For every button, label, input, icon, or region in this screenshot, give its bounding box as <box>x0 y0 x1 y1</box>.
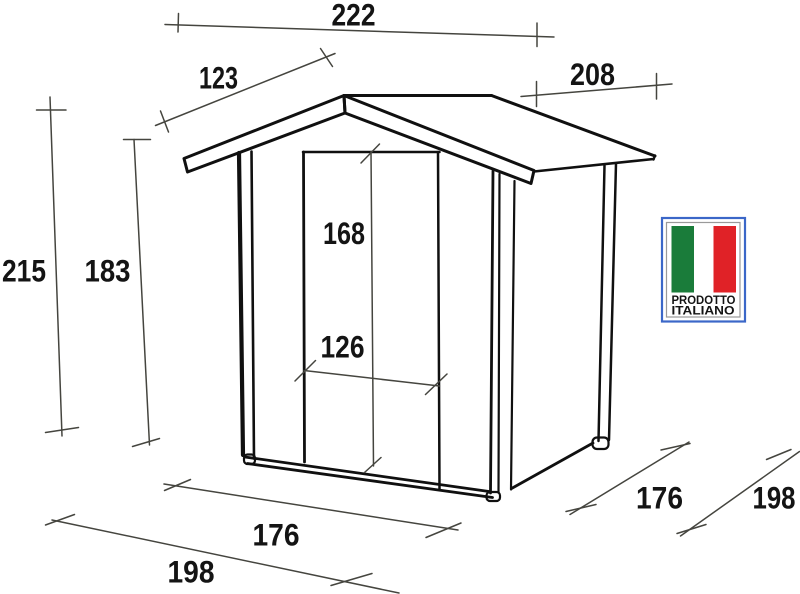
svg-text:126: 126 <box>321 329 365 365</box>
svg-text:176: 176 <box>636 480 683 516</box>
svg-text:183: 183 <box>85 253 131 289</box>
svg-text:168: 168 <box>323 215 365 251</box>
svg-text:176: 176 <box>253 517 300 553</box>
svg-text:198: 198 <box>168 554 215 590</box>
svg-text:198: 198 <box>753 480 796 516</box>
svg-text:ITALIANO: ITALIANO <box>672 306 735 318</box>
svg-text:222: 222 <box>332 0 376 33</box>
svg-text:123: 123 <box>199 60 238 96</box>
svg-text:208: 208 <box>570 56 615 92</box>
svg-text:215: 215 <box>2 253 46 289</box>
